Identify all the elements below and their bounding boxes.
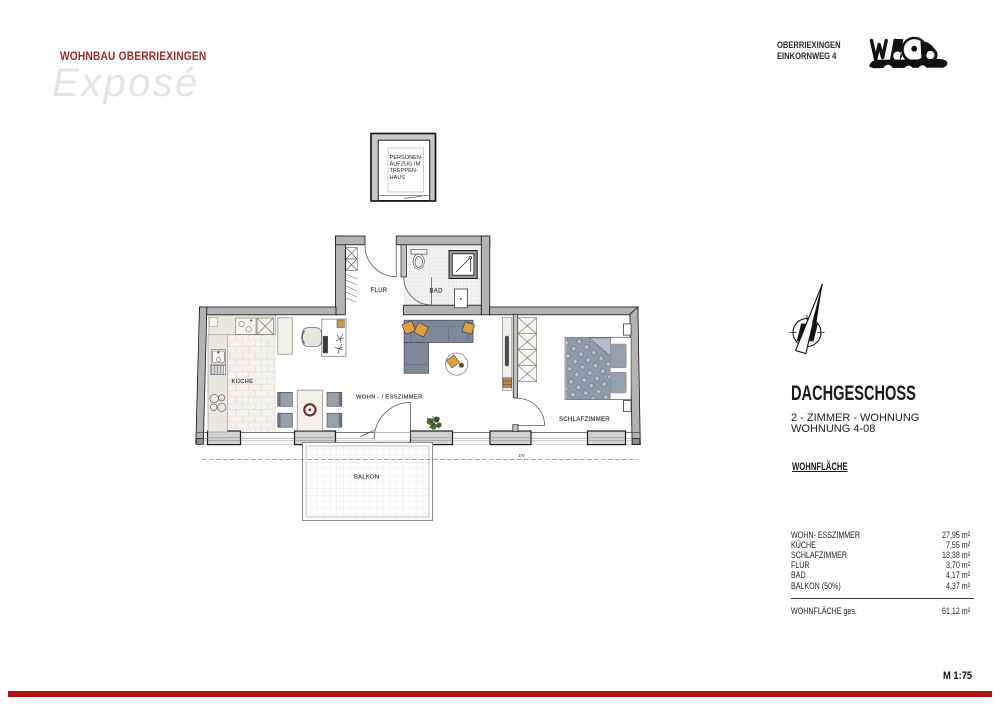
svg-text:SCHLAFZIMMER: SCHLAFZIMMER (559, 417, 610, 423)
svg-text:BALKON: BALKON (354, 475, 379, 481)
svg-text:BAD: BAD (430, 289, 444, 295)
svg-text:AUFZUG IM: AUFZUG IM (390, 162, 421, 168)
svg-text:WOHN - / ESSZIMMER: WOHN - / ESSZIMMER (356, 395, 423, 401)
svg-text:PERSONEN-: PERSONEN- (390, 155, 423, 161)
svg-text:FLUR: FLUR (371, 288, 388, 294)
svg-text:KÜCHE: KÜCHE (232, 378, 254, 385)
svg-text:HAUS: HAUS (390, 175, 406, 181)
svg-text:TREPPEN-: TREPPEN- (390, 168, 418, 174)
svg-text:DV: DV (519, 453, 526, 458)
